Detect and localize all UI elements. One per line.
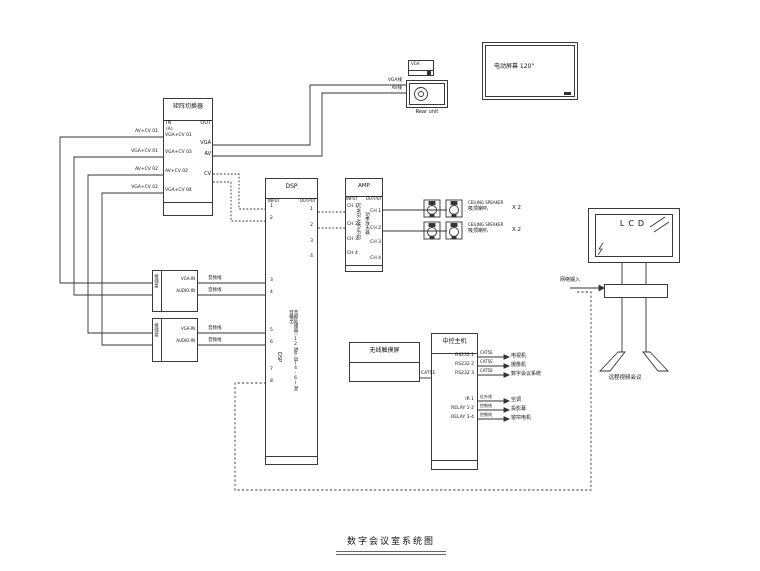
ceiling-speaker-icon xyxy=(424,222,440,239)
speaker-label-en: CEILING SPEAKER xyxy=(468,201,503,206)
controller-target: 空调 xyxy=(511,398,521,404)
dsp-output-num: 1 xyxy=(300,207,313,212)
dsp-vertical-desc: 音频处理器－12进8出(4-6)混音输出 xyxy=(288,310,297,394)
dsp-output-num: 4 xyxy=(300,254,313,259)
matrix-wire-label: AV+CV 01 xyxy=(100,129,158,134)
controller-bottom-divider xyxy=(431,460,478,461)
vtc-codec-shelf xyxy=(604,284,668,298)
screen-pull-tab xyxy=(564,92,571,95)
controller-port: RS232 3 xyxy=(440,371,474,376)
dsp-input-num: 7 xyxy=(270,367,273,372)
amp-title: AMP xyxy=(345,183,383,189)
controller-target: 窗帘电机 xyxy=(511,416,531,422)
matrix-dsp-dashed-wires xyxy=(213,174,265,221)
audio-wire-label: 音频线 xyxy=(208,326,222,331)
network-input-arrow xyxy=(570,285,604,290)
dsp-amp-dashed-wires xyxy=(318,212,345,228)
amp-vertical-label-en: POWER AMPLIFIER xyxy=(356,203,360,240)
matrix-in-port: VGA+CV 03 xyxy=(165,150,192,155)
dsp-output-num: 3 xyxy=(300,239,313,244)
ceiling-speaker-icon xyxy=(446,222,462,239)
diagram-page: { "footer": {"title": "数字会议室系统图"}, "matr… xyxy=(0,0,760,571)
drawing-title: 数字会议室系统图 xyxy=(336,537,446,547)
controller-target: 数字会议系统 xyxy=(511,372,541,378)
controller-port: RS232 2 xyxy=(440,362,474,367)
ceiling-speaker-icon xyxy=(424,200,440,217)
controller-title: 中控主机 xyxy=(431,339,478,346)
floor-box-1-divider xyxy=(161,270,162,312)
speaker-label-cn: 吸顶喇叭 xyxy=(468,207,488,213)
projection-screen-label: 电动屏幕 120" xyxy=(494,64,534,71)
vtc-cart-stand xyxy=(600,263,668,371)
projector-inner-box xyxy=(409,83,445,105)
matrix-bottom-divider xyxy=(163,202,213,203)
vtc-caption: 远程视频会议 xyxy=(594,375,656,381)
controller-cable-label: 控制线 xyxy=(480,413,492,418)
dsp-input-num: 5 xyxy=(270,328,273,333)
controller-cable-label: CAT5E xyxy=(480,369,493,374)
speaker-qty: X 2 xyxy=(512,227,521,233)
controller-cable-label: CAT5E xyxy=(480,351,493,356)
matrix-wire-label: VGA+CV 01 xyxy=(100,149,158,154)
matrix-wire-label: AV+CV 02 xyxy=(100,167,158,172)
dsp-input-num: 3 xyxy=(270,278,273,283)
ceiling-speaker-icon xyxy=(446,200,462,217)
floor-box-1-row: VGA-IN xyxy=(166,277,195,282)
floor-box-2-vertical-label: 接线盒 xyxy=(153,323,158,357)
amp-speaker-wires xyxy=(383,210,447,231)
floor-box-2-divider xyxy=(161,318,162,362)
matrix-in-port: VGA+CV 04 xyxy=(165,188,192,193)
footer-title-underline xyxy=(336,552,446,555)
matrix-wire-label: VGA+CV 02 xyxy=(100,185,158,190)
dsp-output-header: OUTPUT xyxy=(292,199,316,204)
wall-plate-jack xyxy=(427,71,431,75)
projection-screen-inner xyxy=(485,45,575,97)
dsp-input-header: INPUT xyxy=(268,199,280,204)
floor-box-2-row: AUDIO-IN xyxy=(166,339,195,344)
matrix-in-port: VGA+CV 01 xyxy=(165,133,192,138)
matrix-port-tag: (A) xyxy=(166,127,173,132)
floor-box-2-row: VGA-IN xyxy=(166,327,195,332)
controller-cable-label: CAT5E xyxy=(480,360,493,365)
cat5e-cable-label: CAT5E xyxy=(421,371,435,376)
dsp-input-num: 6 xyxy=(270,340,273,345)
vga-wire-label: VGA线 xyxy=(370,78,402,83)
wall-plate-label: VGA xyxy=(411,62,420,67)
speaker-qty: X 2 xyxy=(512,205,521,211)
matrix-out-header: OUT xyxy=(193,121,211,127)
controller-target: 投影幕 xyxy=(511,407,526,413)
dsp-input-num: 1 xyxy=(270,204,273,209)
amp-input-ch: CH 4 xyxy=(347,251,358,256)
matrix-in-header: IN xyxy=(166,121,171,127)
amp-vertical-label-cn: 功率放大器 xyxy=(364,212,369,258)
matrix-out-port: AV xyxy=(190,152,211,158)
amp-output-header: OUTPUT xyxy=(360,197,382,202)
speaker-label-en: CEILING SPEAKER xyxy=(468,223,503,228)
speaker-label-cn: 吸顶喇叭 xyxy=(468,229,488,235)
audio-wire-label: 音频线 xyxy=(208,288,222,293)
controller-port: RS232 1 xyxy=(440,353,474,358)
matrix-out-port: VGA xyxy=(190,141,211,147)
controller-port: RELAY 1-2 xyxy=(440,406,474,411)
dsp-input-num: 2 xyxy=(270,216,273,221)
matrix-in-port: AV+CV 02 xyxy=(165,169,188,174)
matrix-output-wires xyxy=(213,85,406,156)
dsp-vertical-label: DSP xyxy=(276,352,281,362)
controller-port: IR 1 xyxy=(440,397,474,402)
amp-input-header: INPUT xyxy=(346,197,358,202)
floor-box-1-row: AUDIO-IN xyxy=(166,289,195,294)
touch-panel-divider xyxy=(349,362,420,363)
dsp-input-num: 8 xyxy=(270,379,273,384)
dsp-bottom-divider xyxy=(265,456,318,457)
amp-bottom-divider xyxy=(345,265,383,266)
av-wire-label: AV线 xyxy=(374,86,402,91)
dsp-title: DSP xyxy=(265,184,318,191)
controller-port: RELAY 3-4 xyxy=(440,415,474,420)
floor-box-1-vertical-label: 接线盒 xyxy=(153,274,158,308)
network-input-label: 网络输入 xyxy=(560,278,580,284)
projector-label: Rear unit xyxy=(402,110,452,116)
audio-wire-label: 音频线 xyxy=(208,338,222,343)
audio-wire-label: 音频线 xyxy=(208,276,222,281)
controller-cable-label: 红外线 xyxy=(480,395,492,400)
matrix-title: 矩阵切换器 xyxy=(163,104,213,111)
touch-panel-label: 无线触摸屏 xyxy=(349,348,420,355)
controller-target: 电视机 xyxy=(511,354,526,360)
dsp-input-num: 4 xyxy=(270,290,273,295)
controller-target: 摄像机 xyxy=(511,363,526,369)
dsp-output-num: 2 xyxy=(300,223,313,228)
matrix-out-port: CV xyxy=(190,172,211,178)
vtc-lcd-label: LCD xyxy=(604,219,664,228)
controller-cable-label: 控制线 xyxy=(480,404,492,409)
